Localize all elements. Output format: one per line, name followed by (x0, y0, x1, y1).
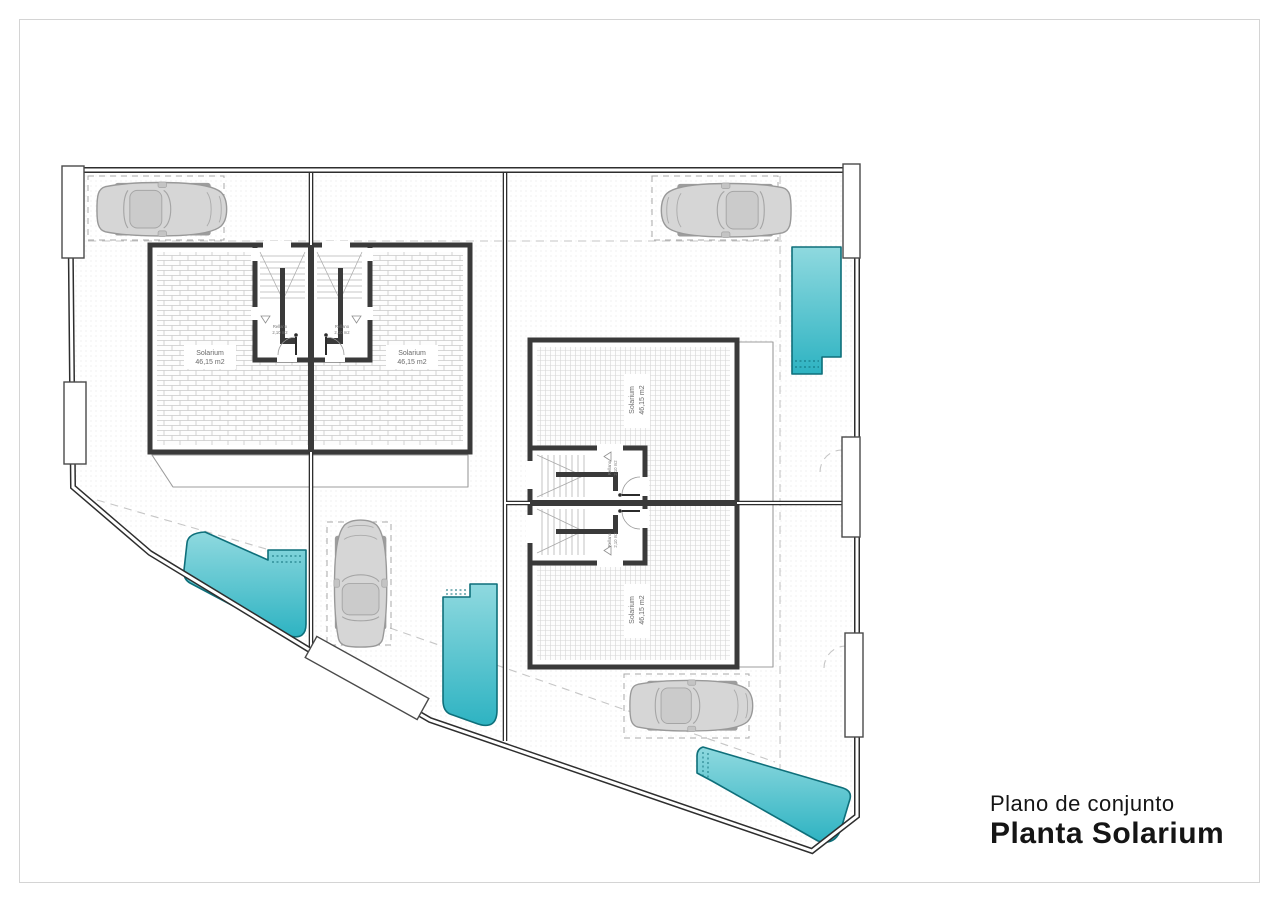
landing-area-label: 2,10 m2 (613, 532, 618, 548)
solarium-area-label: 46,15 m2 (397, 359, 426, 366)
landing-label: Rellano (607, 532, 612, 547)
solarium-area-label: 46,15 m2 (639, 595, 646, 624)
drawing-sheet: Solarium 46,15 m2 Solarium 46,15 m2 Sola… (0, 0, 1280, 904)
drawing-title: Planta Solarium (990, 817, 1224, 851)
gate-pillar (845, 633, 863, 737)
gate-pillar (843, 164, 860, 258)
pool-northeast (792, 247, 841, 374)
landing-area-label: 2,10 m2 (334, 330, 350, 335)
landing-label: Rellano (335, 324, 350, 329)
title-block: Plano de conjunto Planta Solarium (990, 792, 1224, 850)
car-icon (97, 182, 227, 237)
pool-center (443, 584, 497, 725)
solarium-label: Solarium (629, 386, 636, 414)
solarium-area-label: 46,15 m2 (639, 385, 646, 414)
solarium-label: Solarium (398, 350, 426, 357)
car-icon (630, 680, 753, 732)
stair-core (526, 444, 649, 567)
landing-area-label: 2,10 m2 (613, 460, 618, 476)
drawing-subtitle: Plano de conjunto (990, 792, 1224, 817)
solarium-label: Solarium (629, 596, 636, 624)
car-icon (334, 520, 387, 647)
landing-label: Rellano (273, 324, 288, 329)
gate-pillar (62, 166, 84, 258)
building-west-duplex (150, 241, 470, 452)
gate-pillar (842, 437, 860, 537)
car-icon (661, 183, 791, 238)
landing-label: Rellano (607, 460, 612, 475)
site-plan: Solarium 46,15 m2 Solarium 46,15 m2 Sola… (0, 0, 1280, 904)
solarium-label: Solarium (196, 350, 224, 357)
stair-core (251, 241, 373, 362)
landing-area-label: 2,10 m2 (272, 330, 288, 335)
gate-pillar (64, 382, 86, 464)
solarium-area-label: 46,15 m2 (195, 359, 224, 366)
